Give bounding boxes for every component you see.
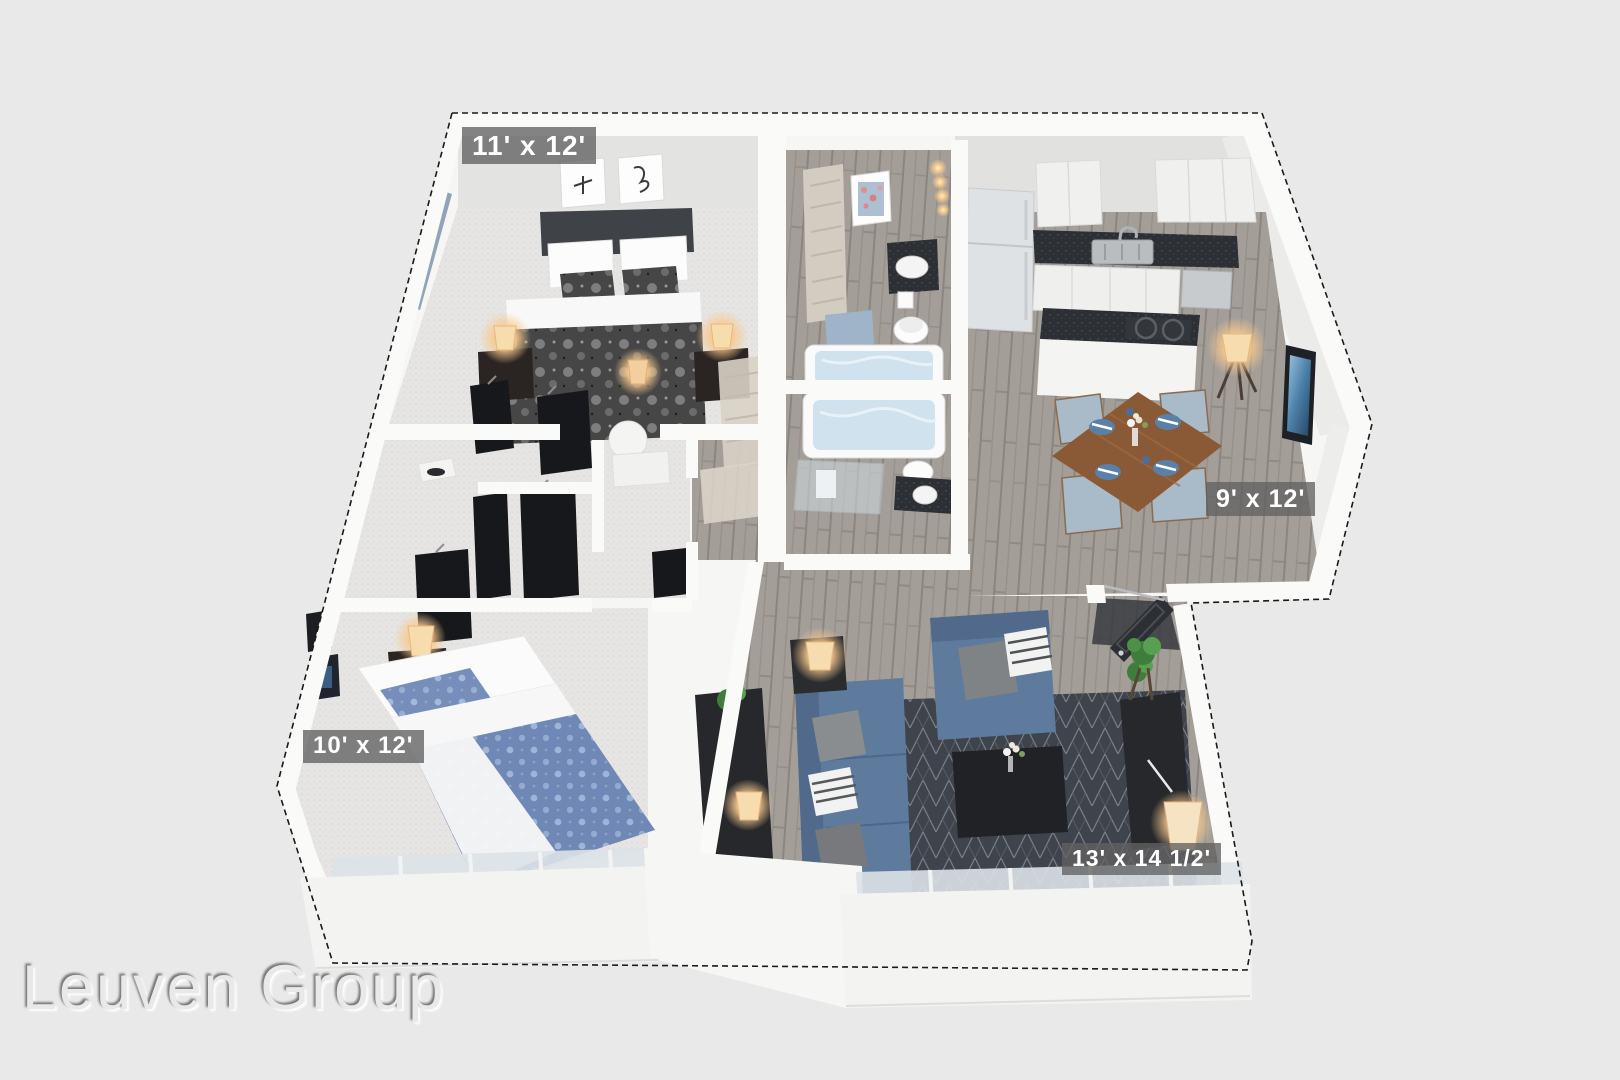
floorplan-image: 11' x 12' 9' x 12' 10' x 12' 13' x 14 1/… xyxy=(0,0,1620,1080)
floorplan-rendering xyxy=(0,0,1620,1080)
watermark-logo: Leuven Group xyxy=(22,952,445,1024)
room-dimension-label-bedroom-1: 11' x 12' xyxy=(462,127,596,164)
room-dimension-label-bedroom-2: 10' x 12' xyxy=(303,730,424,763)
bathroom-2-group xyxy=(794,386,970,514)
room-dimension-label-dining: 9' x 12' xyxy=(1206,482,1315,516)
room-dimension-label-living: 13' x 14 1/2' xyxy=(1062,843,1221,875)
